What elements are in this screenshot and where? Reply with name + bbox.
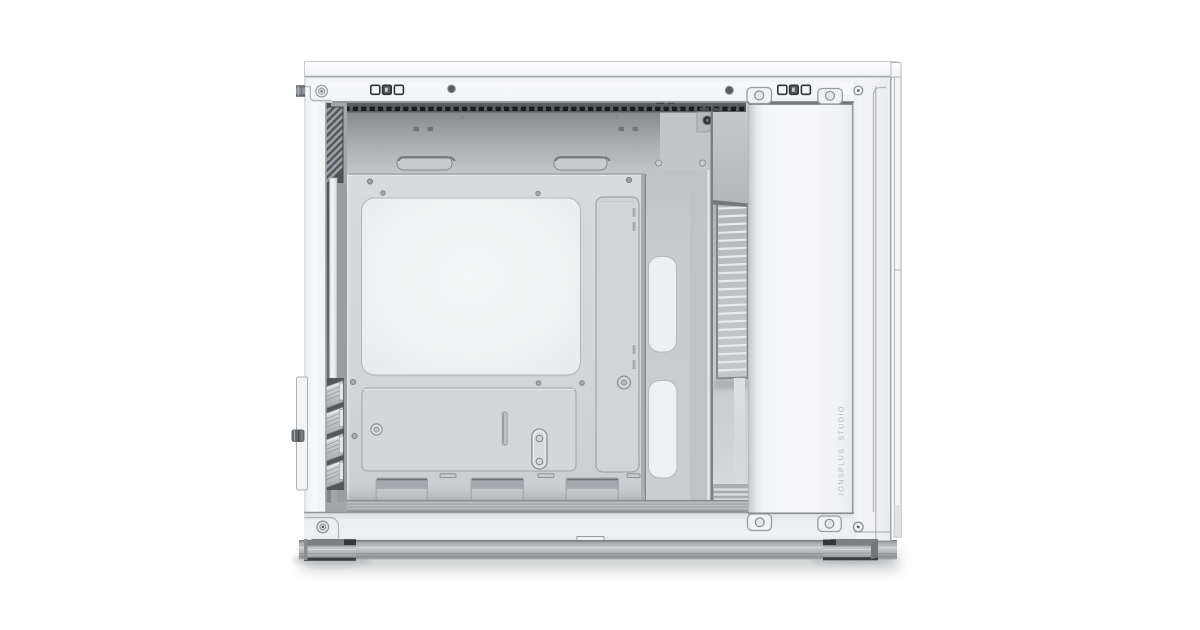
svg-text:JONSPLUS STUDIO: JONSPLUS STUDIO bbox=[837, 405, 846, 497]
